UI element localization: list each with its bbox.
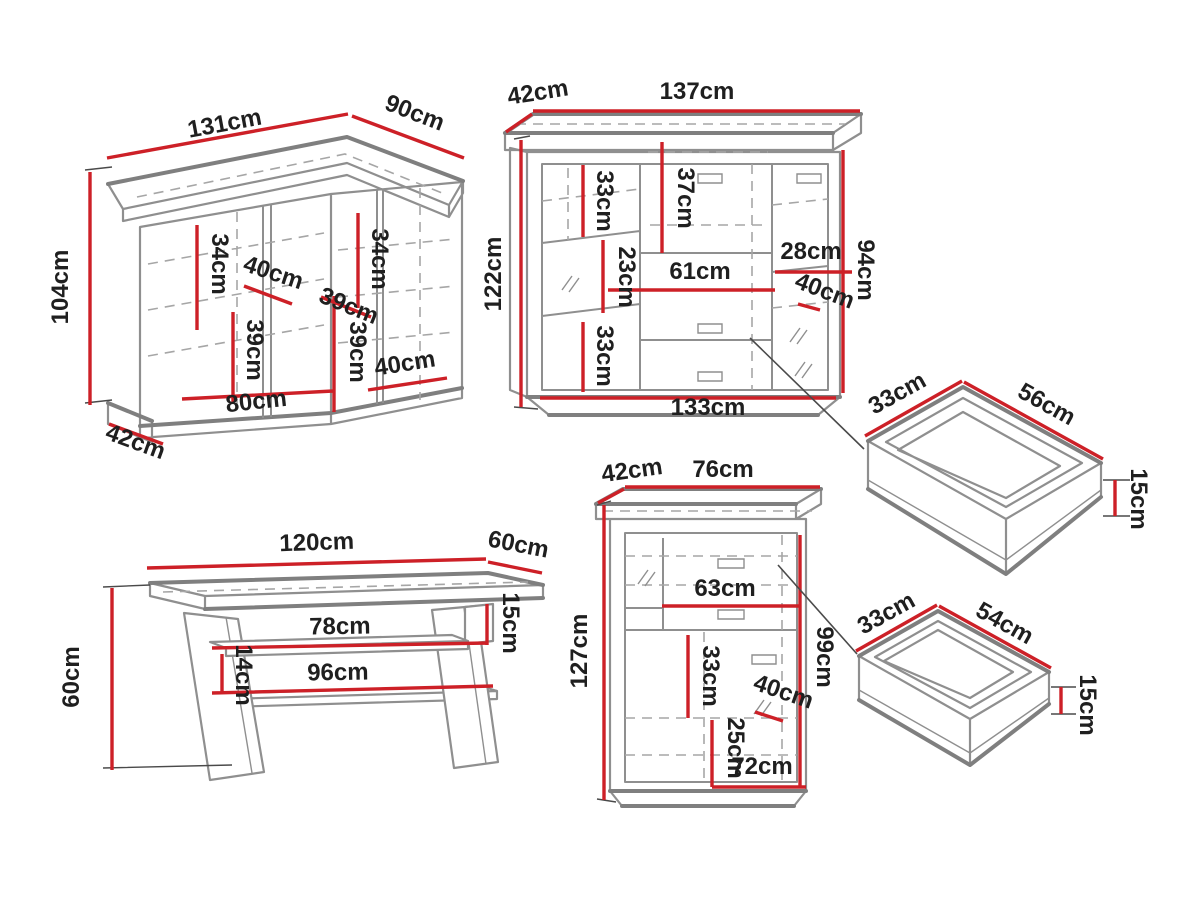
cabinet-top-width-label: 76cm [692, 456, 753, 483]
corner-inner-lower-left-label: 39cm [241, 319, 268, 380]
corner-inner-corner-height-label: 39cm [344, 321, 371, 382]
corner-height-label: 104cm [47, 250, 74, 325]
diagram-canvas: 131cm 90cm 104cm 42cm 34cm 40cm 34cm 39c… [0, 0, 1200, 900]
corner-inner-left-height-label: 34cm [206, 233, 233, 294]
cabinet-right-inner-height-label: 99cm [811, 626, 838, 687]
highboard-drawing: 42cm 137cm 122cm 33cm 37cm 23cm 61cm 28c… [480, 74, 879, 449]
highboard-lower-left-shelf-label: 33cm [591, 325, 618, 386]
drawer-large-height-label: 15cm [1125, 468, 1152, 529]
drawer-small-height-label: 15cm [1074, 674, 1101, 735]
highboard-upper-middle-label: 37cm [672, 167, 699, 228]
highboard-height-label: 122cm [480, 237, 507, 312]
coffee-table-top-width-label: 120cm [279, 528, 355, 558]
highboard-upper-left-shelf-label: 33cm [591, 170, 618, 231]
cabinet-bottom-width-label: 72cm [731, 753, 792, 780]
cabinet-height-label: 127cm [566, 614, 593, 689]
coffee-table-shelf-supports [465, 604, 493, 644]
highboard-right-shelf-width-label: 28cm [780, 238, 841, 265]
cabinet-inner-left-height-label: 33cm [697, 645, 724, 706]
coffee-table-lower-shelf-width-label: 96cm [307, 658, 369, 686]
coffee-table-upper-shelf-width-label: 78cm [309, 612, 371, 640]
coffee-table-top-shelf-gap-label: 15cm [497, 592, 524, 653]
highboard-bottom-width-label: 133cm [671, 394, 746, 421]
corner-inner-right-height-label: 34cm [366, 228, 393, 289]
coffee-table-shelf-gap-label: 14cm [230, 644, 257, 705]
cabinet-middle-width-label: 63cm [694, 575, 755, 602]
highboard-top-width-label: 137cm [660, 78, 735, 105]
highboard-middle-width-label: 61cm [669, 258, 730, 285]
coffee-table-height-label: 60cm [58, 646, 85, 707]
highboard-middle-left-label: 23cm [613, 246, 640, 307]
furniture-dimensions-diagram: 131cm 90cm 104cm 42cm 34cm 40cm 34cm 39c… [0, 0, 1200, 900]
